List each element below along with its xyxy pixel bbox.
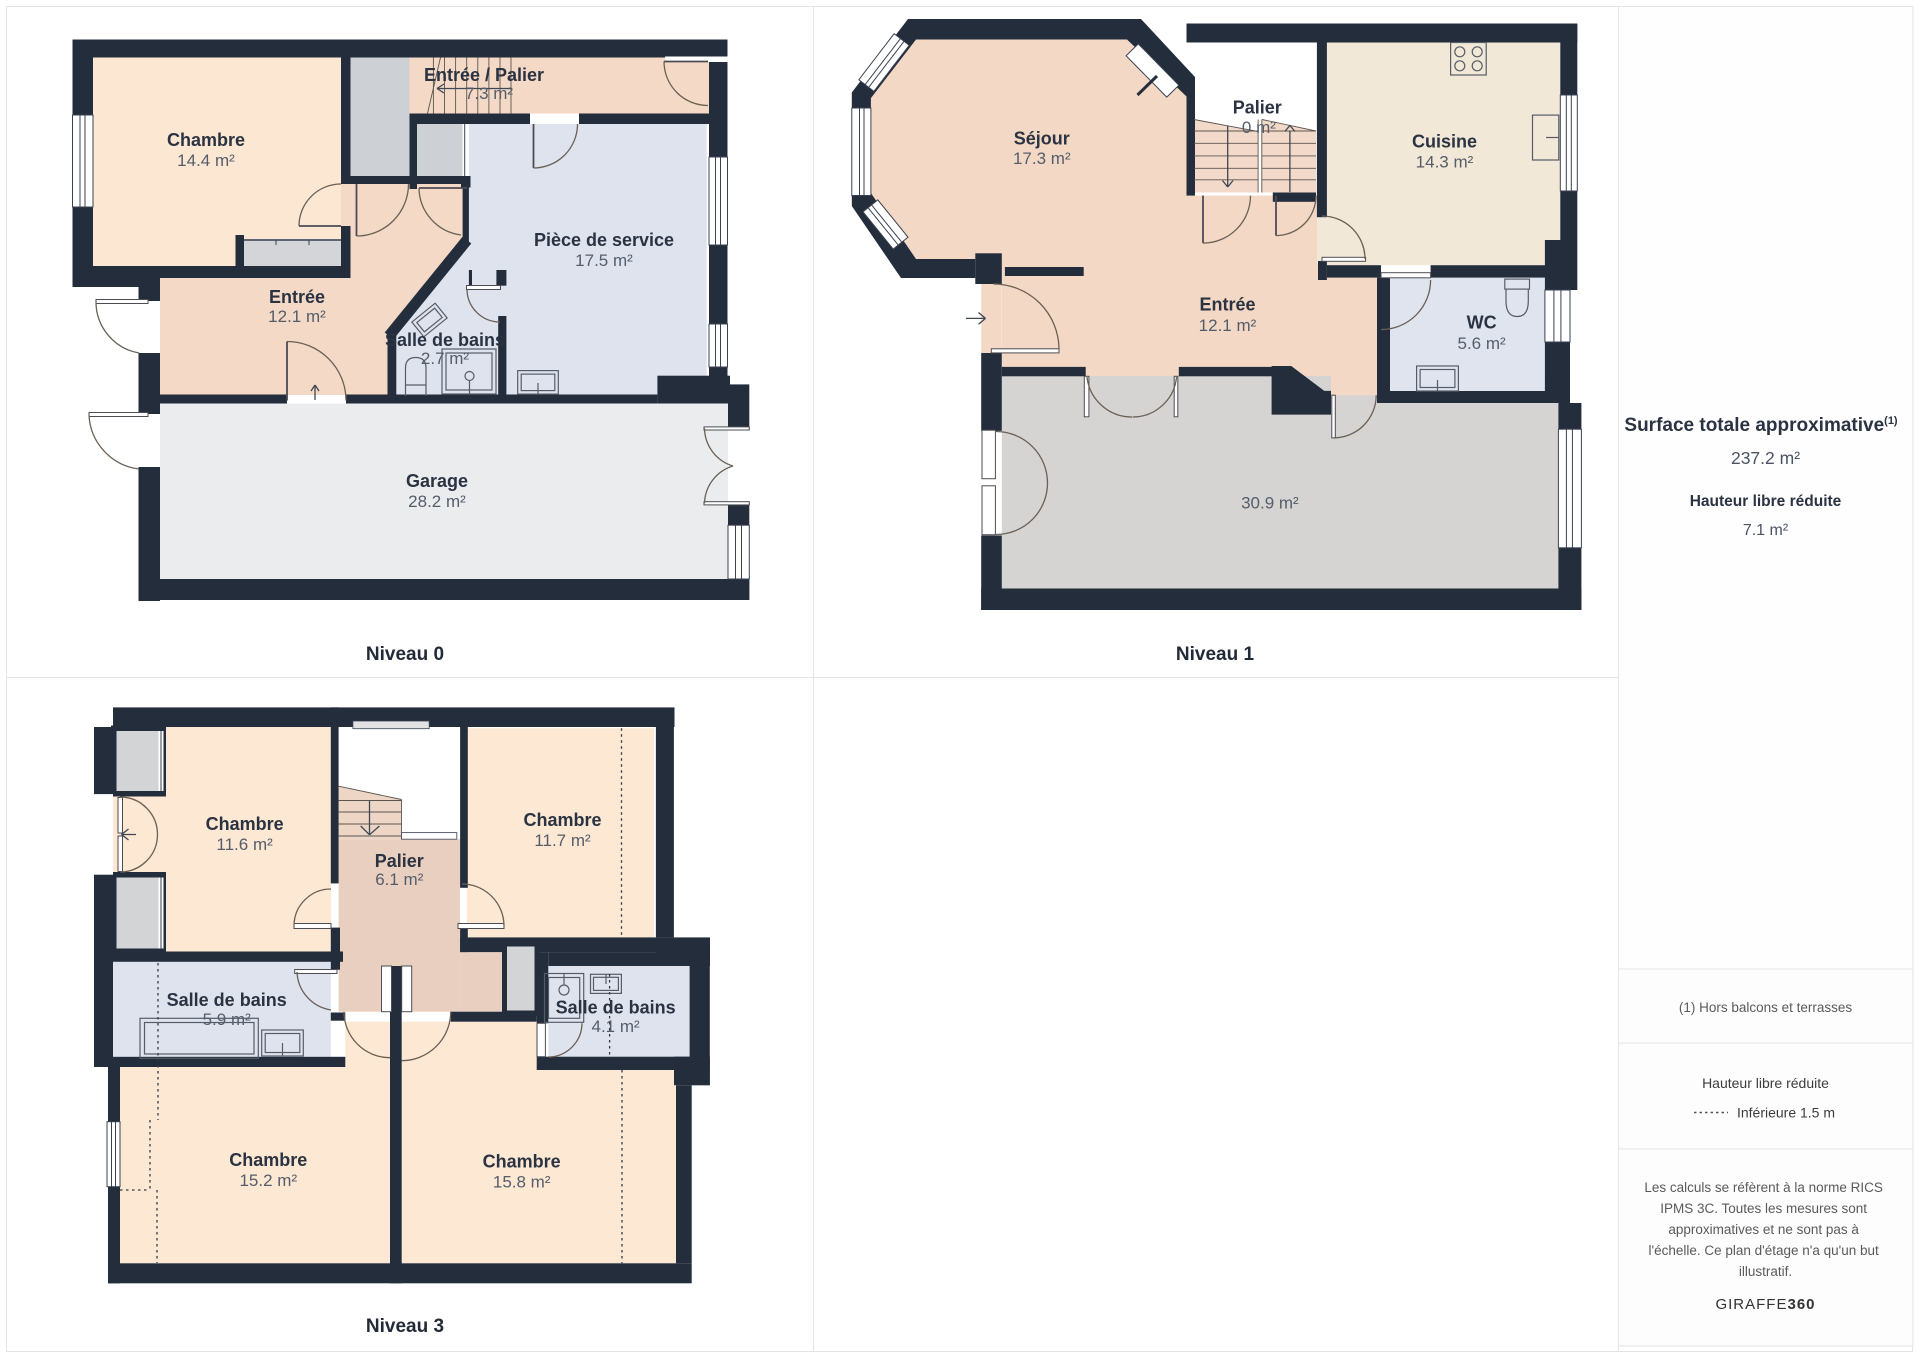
svg-text:28.2 m²: 28.2 m² bbox=[408, 492, 466, 511]
svg-text:15.8 m²: 15.8 m² bbox=[493, 1173, 551, 1192]
svg-text:14.3 m²: 14.3 m² bbox=[1416, 153, 1474, 172]
svg-text:17.5 m²: 17.5 m² bbox=[575, 251, 633, 270]
svg-text:11.7 m²: 11.7 m² bbox=[534, 831, 591, 850]
svg-text:Palier: Palier bbox=[1233, 98, 1282, 118]
svg-text:4.1 m²: 4.1 m² bbox=[592, 1017, 641, 1036]
svg-text:GIRAFFE360: GIRAFFE360 bbox=[1715, 1296, 1815, 1313]
svg-text:12.1 m²: 12.1 m² bbox=[268, 307, 326, 326]
svg-text:7.1 m²: 7.1 m² bbox=[1743, 522, 1789, 539]
svg-text:Chambre: Chambre bbox=[167, 130, 245, 150]
svg-text:Entrée: Entrée bbox=[1199, 295, 1255, 315]
svg-text:Salle de bains: Salle de bains bbox=[556, 998, 676, 1018]
svg-text:Hauteur libre réduite: Hauteur libre réduite bbox=[1690, 493, 1842, 510]
svg-text:Entrée: Entrée bbox=[269, 287, 325, 307]
svg-text:Garage: Garage bbox=[406, 471, 468, 491]
svg-text:Chambre: Chambre bbox=[523, 810, 601, 830]
svg-text:Cuisine: Cuisine bbox=[1412, 132, 1477, 152]
svg-text:30.9 m²: 30.9 m² bbox=[1241, 494, 1299, 513]
svg-text:Palier: Palier bbox=[375, 851, 424, 871]
svg-text:Niveau 3: Niveau 3 bbox=[366, 1316, 444, 1337]
svg-text:Entrée / Palier: Entrée / Palier bbox=[424, 65, 544, 85]
svg-text:Salle de bains: Salle de bains bbox=[167, 990, 287, 1010]
svg-text:Salle de bains: Salle de bains bbox=[385, 330, 505, 350]
svg-text:WC: WC bbox=[1467, 313, 1497, 333]
svg-text:Niveau 0: Niveau 0 bbox=[366, 644, 444, 665]
svg-text:Chambre: Chambre bbox=[483, 1152, 561, 1172]
svg-text:15.2 m²: 15.2 m² bbox=[239, 1171, 297, 1190]
svg-text:12.1 m²: 12.1 m² bbox=[1199, 316, 1257, 335]
svg-text:17.3 m²: 17.3 m² bbox=[1013, 149, 1071, 168]
svg-text:11.6 m²: 11.6 m² bbox=[216, 835, 273, 854]
svg-text:Inférieure 1.5 m: Inférieure 1.5 m bbox=[1737, 1105, 1835, 1121]
svg-text:5.6 m²: 5.6 m² bbox=[1458, 334, 1507, 353]
svg-text:Niveau 1: Niveau 1 bbox=[1176, 644, 1255, 665]
svg-text:Chambre: Chambre bbox=[206, 814, 284, 834]
svg-text:Chambre: Chambre bbox=[229, 1150, 307, 1170]
svg-text:Hauteur libre réduite: Hauteur libre réduite bbox=[1702, 1075, 1829, 1091]
svg-text:Séjour: Séjour bbox=[1014, 129, 1070, 149]
svg-text:7.3 m²: 7.3 m² bbox=[465, 84, 514, 103]
svg-text:14.4 m²: 14.4 m² bbox=[177, 151, 235, 170]
svg-text:(1) Hors balcons et terrasses: (1) Hors balcons et terrasses bbox=[1679, 1000, 1853, 1015]
svg-text:5.9 m²: 5.9 m² bbox=[203, 1010, 252, 1029]
svg-text:Pièce de service: Pièce de service bbox=[534, 230, 674, 250]
svg-text:2.7 m²: 2.7 m² bbox=[421, 349, 470, 368]
svg-text:6.1 m²: 6.1 m² bbox=[375, 870, 424, 889]
svg-text:Surface totale approximative(1: Surface totale approximative(1) bbox=[1624, 415, 1898, 436]
svg-text:237.2 m²: 237.2 m² bbox=[1731, 448, 1800, 468]
svg-text:0 m²: 0 m² bbox=[1242, 118, 1276, 137]
